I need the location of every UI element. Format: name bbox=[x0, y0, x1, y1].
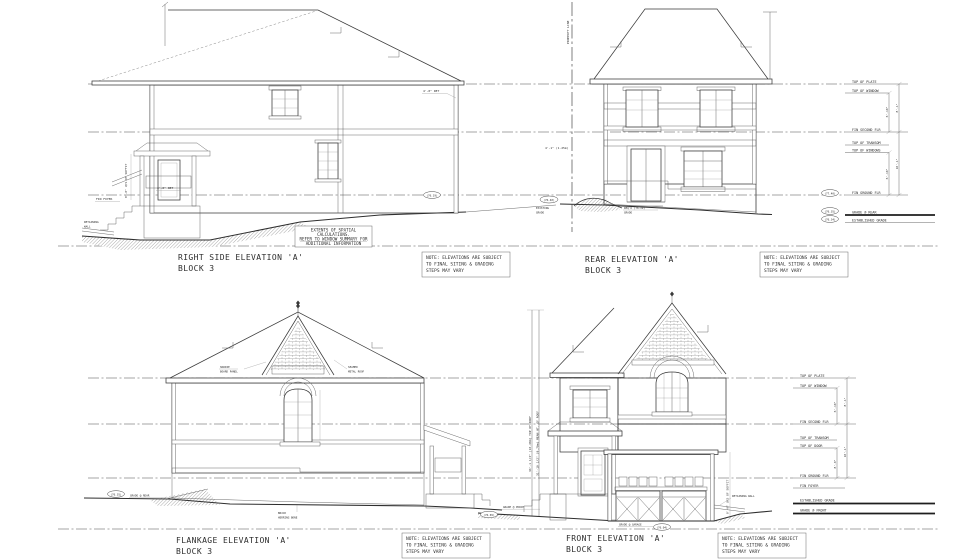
head-band bbox=[604, 140, 756, 146]
retaining-wall-label: RETAINING bbox=[84, 220, 99, 224]
window-sill-3 bbox=[280, 442, 320, 446]
elevation-bubble: (77.40) bbox=[824, 191, 836, 195]
dim-label: 6'-10" bbox=[885, 168, 889, 179]
dim-label: 6'-10" bbox=[833, 401, 837, 412]
rear-offset-dim: 4'-1" (1.25m) bbox=[545, 146, 569, 150]
svg-text:TO FINAL SITING & GRADING: TO FINAL SITING & GRADING bbox=[406, 543, 474, 549]
siting-note-box-3: NOTE: ELEVATIONS ARE SUBJECT TO FINAL SI… bbox=[402, 533, 490, 558]
mean-roof-dim: 31'-10 1/2" (9.70m) MEAN HT. OF ROOF bbox=[536, 411, 540, 476]
porch-roof-3 bbox=[548, 422, 622, 431]
porch-steps-2 bbox=[474, 494, 490, 506]
dim-label: 8'-1" bbox=[843, 397, 847, 406]
gable-band bbox=[632, 360, 714, 365]
title-rear-block: BLOCK 3 bbox=[585, 266, 622, 275]
garage-head-band bbox=[615, 487, 707, 491]
existing-grade-label: EXISTING bbox=[536, 206, 549, 210]
porch-stairs bbox=[100, 206, 140, 230]
herringbone-label: BRICK bbox=[278, 511, 286, 515]
gable-finial bbox=[670, 292, 674, 297]
porch-post-5 bbox=[554, 436, 558, 494]
architectural-elevation-sheet: FIN FOYER RETAINING WALL 8'-0" U/S OF SO… bbox=[0, 0, 974, 560]
title-flankage-block: BLOCK 3 bbox=[176, 547, 213, 556]
right-side-elevation-drawing: FIN FOYER RETAINING WALL 8'-0" U/S OF SO… bbox=[82, 2, 466, 250]
corner-board bbox=[604, 84, 608, 184]
siting-note-box-4: NOTE: ELEVATIONS ARE SUBJECT TO FINAL SI… bbox=[718, 533, 806, 558]
grade-garage-label: GRADE @ GARAGE bbox=[619, 523, 642, 527]
svg-text:HERRING BONE: HERRING BONE bbox=[278, 516, 298, 520]
svg-text:NOTE: ELEVATIONS ARE SUBJECT: NOTE: ELEVATIONS ARE SUBJECT bbox=[722, 536, 798, 542]
level-label: FIN FOYER bbox=[800, 484, 819, 488]
porch-roof-2 bbox=[424, 425, 470, 446]
level-label: FIN SECOND FLR bbox=[852, 128, 882, 132]
svg-text:(76.65): (76.65) bbox=[483, 513, 495, 517]
elevation-bubble: (76.35) bbox=[824, 209, 836, 213]
svg-text:STEPS MAY VARY: STEPS MAY VARY bbox=[406, 549, 444, 555]
level-label: TOP OF TRANSOM bbox=[852, 141, 881, 145]
datum-lines bbox=[58, 84, 940, 529]
roof-pitch-mark-7 bbox=[573, 345, 584, 352]
seamed-metal-label: SEAMED bbox=[348, 365, 358, 369]
porch-fascia bbox=[134, 151, 210, 156]
porch-railing-2 bbox=[435, 458, 461, 472]
siting-note-box-2: NOTE: ELEVATIONS ARE SUBJECT TO FINAL SI… bbox=[760, 252, 848, 277]
dim-label: 10'-1" bbox=[895, 158, 899, 169]
grade-porch-label: GRADE @ PORCH bbox=[503, 505, 524, 509]
corner-board-4 bbox=[421, 383, 425, 473]
svg-text:TO FINAL SITING & GRADING: TO FINAL SITING & GRADING bbox=[426, 262, 494, 268]
dim-label: 8'-1" bbox=[895, 103, 899, 112]
svg-text:(76.35): (76.35) bbox=[110, 492, 122, 496]
mid-wall bbox=[618, 424, 726, 452]
svg-text:NOTE: ELEVATIONS ARE SUBJECT: NOTE: ELEVATIONS ARE SUBJECT bbox=[406, 536, 482, 542]
window-sill-5 bbox=[570, 418, 610, 422]
roof-outline bbox=[168, 10, 461, 81]
bay-eave-fascia bbox=[550, 373, 624, 378]
ground-hatch-2 bbox=[150, 489, 220, 506]
porch-post-left bbox=[140, 156, 144, 206]
soffit-dim-label-2: 8'-0" U/S OF SOFFIT bbox=[726, 479, 730, 514]
svg-text:WALL: WALL bbox=[84, 225, 91, 229]
svg-text:GRADE: GRADE bbox=[624, 211, 632, 215]
svg-text:(76.19): (76.19) bbox=[426, 193, 438, 197]
porch-pier-left bbox=[550, 494, 566, 520]
flankage-elevation-drawing: HARDIE BOARD PANEL SEAMED METAL ROOF BRI… bbox=[84, 301, 502, 520]
eave-fascia-2 bbox=[590, 79, 772, 84]
level-label: TOP OF PLATE bbox=[852, 80, 877, 84]
svg-text:ADDITIONAL INFORMATION: ADDITIONAL INFORMATION bbox=[306, 241, 362, 246]
level-label: TOP OF WINDOW bbox=[852, 89, 879, 93]
front-elevation-drawing: 34'-1 1/2" (10.40m) TOP OF ROOF 31'-10 1… bbox=[478, 292, 772, 531]
ret-label-2: 4'-0" RET bbox=[423, 89, 439, 93]
roof-pitch-mark bbox=[330, 27, 341, 33]
level-label: FIN GROUND FLR bbox=[852, 191, 882, 195]
roof-pitch-mark-8 bbox=[697, 325, 708, 332]
ret-label: 4'-0" RET bbox=[157, 186, 173, 190]
title-right-side-elevation: RIGHT SIDE ELEVATION 'A' bbox=[178, 253, 303, 262]
svg-text:NOTE: ELEVATIONS ARE SUBJECT: NOTE: ELEVATIONS ARE SUBJECT bbox=[426, 255, 502, 261]
porch-post-3 bbox=[430, 446, 434, 494]
title-front-elevation: FRONT ELEVATION 'A' bbox=[566, 534, 665, 543]
grade-rear-label: GRADE @ REAR bbox=[130, 494, 150, 498]
rear-elevation-drawing: (76.40) EXISTING GRADE REQ'D (76.19) GRA… bbox=[466, 9, 777, 215]
roof-pitch-mark-5 bbox=[222, 342, 233, 348]
corner-board-3 bbox=[172, 383, 176, 473]
title-right-side-block: BLOCK 3 bbox=[178, 264, 215, 273]
retaining-wall-label-2: RETAINING WALL bbox=[732, 494, 755, 498]
level-label: TOP OF DOOR bbox=[800, 444, 823, 448]
window-sill-4 bbox=[652, 412, 692, 416]
svg-text:STEPS MAY VARY: STEPS MAY VARY bbox=[764, 268, 802, 274]
window-head-trim bbox=[269, 86, 301, 90]
levels-bottom-stack: TOP OF PLATE TOP OF WINDOW FIN SECOND FL… bbox=[793, 374, 935, 514]
elevation-bubble: (76.34) bbox=[824, 217, 836, 221]
svg-text:METAL ROOF: METAL ROOF bbox=[348, 370, 365, 374]
level-label: FIN SECOND FLR bbox=[800, 420, 830, 424]
title-front-block: BLOCK 3 bbox=[566, 545, 603, 554]
levels-top-stack: TOP OF PLATE TOP OF WINDOW FIN SECOND FL… bbox=[822, 80, 936, 223]
floor-trim-band bbox=[150, 129, 458, 135]
porch-post-6 bbox=[612, 436, 616, 494]
gf-window-head bbox=[681, 147, 725, 151]
porch-roof bbox=[136, 143, 208, 151]
svg-text:(76.04): (76.04) bbox=[656, 525, 668, 529]
svg-text:STEPS MAY VARY: STEPS MAY VARY bbox=[722, 549, 760, 555]
svg-text:TO FINAL SITING & GRADING: TO FINAL SITING & GRADING bbox=[722, 543, 790, 549]
siting-note-box-1: NOTE: ELEVATIONS ARE SUBJECT TO FINAL SI… bbox=[422, 252, 510, 277]
grade-line bbox=[82, 212, 466, 240]
property-line-label: PROPERTY LINE bbox=[566, 20, 570, 44]
hip-roof-outline bbox=[594, 9, 768, 79]
extents-note-box: EXTENTS OF SPATIAL CALCULATIONS. REFER T… bbox=[295, 226, 372, 247]
corner-board-right bbox=[454, 85, 458, 213]
dim-label: 8'-0" bbox=[833, 459, 837, 468]
hardie-label: HARDIE bbox=[220, 365, 230, 369]
gable-shingles bbox=[634, 312, 710, 362]
svg-text:NOTE: ELEVATIONS ARE SUBJECT: NOTE: ELEVATIONS ARE SUBJECT bbox=[764, 255, 840, 261]
dim-label: 10'-1" bbox=[843, 446, 847, 457]
level-label: GRADE @ REAR bbox=[852, 211, 877, 215]
soffit-dim-label: 8'-0" U/S OF SOFFIT bbox=[124, 163, 128, 198]
level-label: GRADE @ FRONT bbox=[800, 509, 827, 513]
corner-board-2 bbox=[753, 84, 757, 184]
property-line: PROPERTY LINE bbox=[566, 2, 572, 232]
title-flankage-elevation: FLANKAGE ELEVATION 'A' bbox=[176, 536, 291, 545]
foyer-door bbox=[158, 160, 180, 200]
level-label: ESTABLISHED GRADE bbox=[852, 218, 887, 222]
window-sill bbox=[269, 116, 301, 119]
bay-roof-slope bbox=[552, 308, 614, 373]
corner-board-left bbox=[150, 85, 154, 213]
gf-window-sill bbox=[681, 187, 725, 192]
roof-pitch-mark-2 bbox=[388, 51, 399, 57]
porch-post-right bbox=[192, 156, 196, 206]
roof-pitch-mark-6 bbox=[372, 342, 383, 348]
level-label: TOP OF WINDOWS bbox=[852, 148, 881, 152]
svg-text:GRADE: GRADE bbox=[536, 211, 544, 215]
garage-window-strip bbox=[619, 477, 703, 486]
eave-fascia bbox=[92, 81, 464, 85]
level-label: TOP OF PLATE bbox=[800, 374, 825, 378]
dormer-finial bbox=[296, 304, 300, 309]
window-head-trim-2 bbox=[315, 140, 341, 143]
window-sill-2 bbox=[315, 179, 341, 182]
hidden-hip-line bbox=[98, 11, 316, 81]
title-rear-elevation: REAR ELEVATION 'A' bbox=[585, 255, 679, 264]
garage-door-right bbox=[662, 491, 706, 521]
fin-foyer-label: FIN FOYER bbox=[96, 197, 112, 201]
garage-door-left bbox=[616, 491, 660, 521]
porch-post-4 bbox=[462, 446, 466, 494]
level-label: TOP OF TRANSOM bbox=[800, 436, 829, 440]
svg-text:TO FINAL SITING & GRADING: TO FINAL SITING & GRADING bbox=[764, 262, 832, 268]
level-label: FIN GROUND FLR bbox=[800, 474, 830, 478]
svg-text:(76.40): (76.40) bbox=[543, 198, 555, 202]
level-label: ESTABLISHED GRADE bbox=[800, 499, 835, 503]
porch-fascia-2 bbox=[548, 431, 622, 436]
level-label: TOP OF WINDOW bbox=[800, 384, 827, 388]
svg-text:BOARD PANEL: BOARD PANEL bbox=[220, 370, 238, 374]
dim-label: 6'-10" bbox=[885, 106, 889, 117]
window-head-3 bbox=[570, 386, 610, 390]
top-of-roof-dim: 34'-1 1/2" (10.40m) TOP OF ROOF bbox=[528, 416, 532, 472]
svg-text:STEPS MAY VARY: STEPS MAY VARY bbox=[426, 268, 464, 274]
